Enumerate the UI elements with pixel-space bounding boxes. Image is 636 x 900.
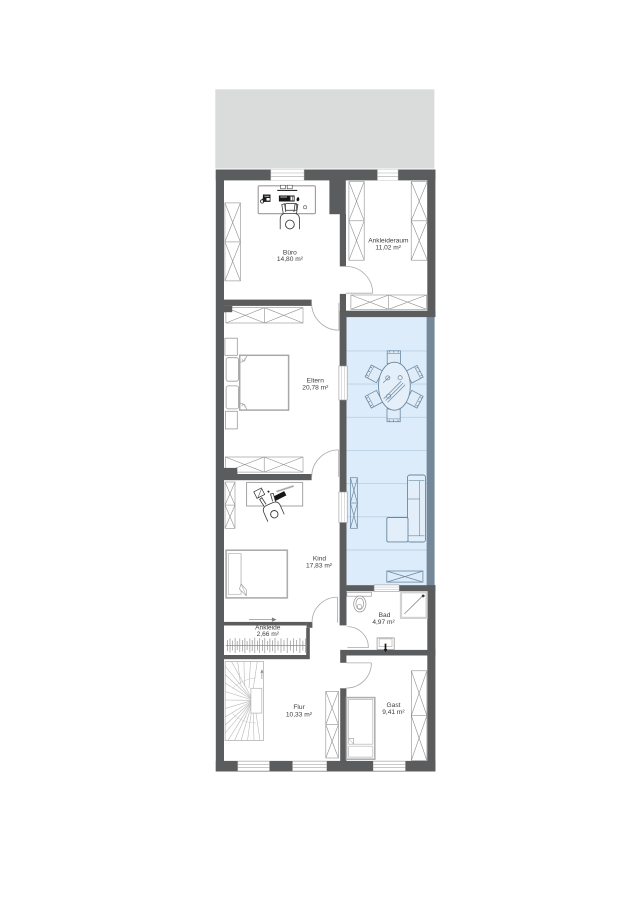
svg-text:9,41 m²: 9,41 m² xyxy=(382,709,405,716)
svg-text:Eltern: Eltern xyxy=(307,377,325,384)
svg-text:Ankleideraum: Ankleideraum xyxy=(368,238,409,245)
svg-text:17,83 m²: 17,83 m² xyxy=(306,563,333,570)
svg-text:14,80 m²: 14,80 m² xyxy=(277,256,304,263)
svg-text:2,66 m²: 2,66 m² xyxy=(257,631,280,638)
svg-text:Kind: Kind xyxy=(313,556,327,563)
svg-text:Gast: Gast xyxy=(387,702,401,709)
svg-text:4,97 m²: 4,97 m² xyxy=(372,619,395,626)
svg-text:Bad: Bad xyxy=(379,612,391,619)
svg-text:11,02 m²: 11,02 m² xyxy=(375,245,401,252)
svg-text:20,78 m²: 20,78 m² xyxy=(302,385,329,392)
svg-text:Flur: Flur xyxy=(293,704,305,711)
svg-text:10,33 m²: 10,33 m² xyxy=(286,711,313,718)
